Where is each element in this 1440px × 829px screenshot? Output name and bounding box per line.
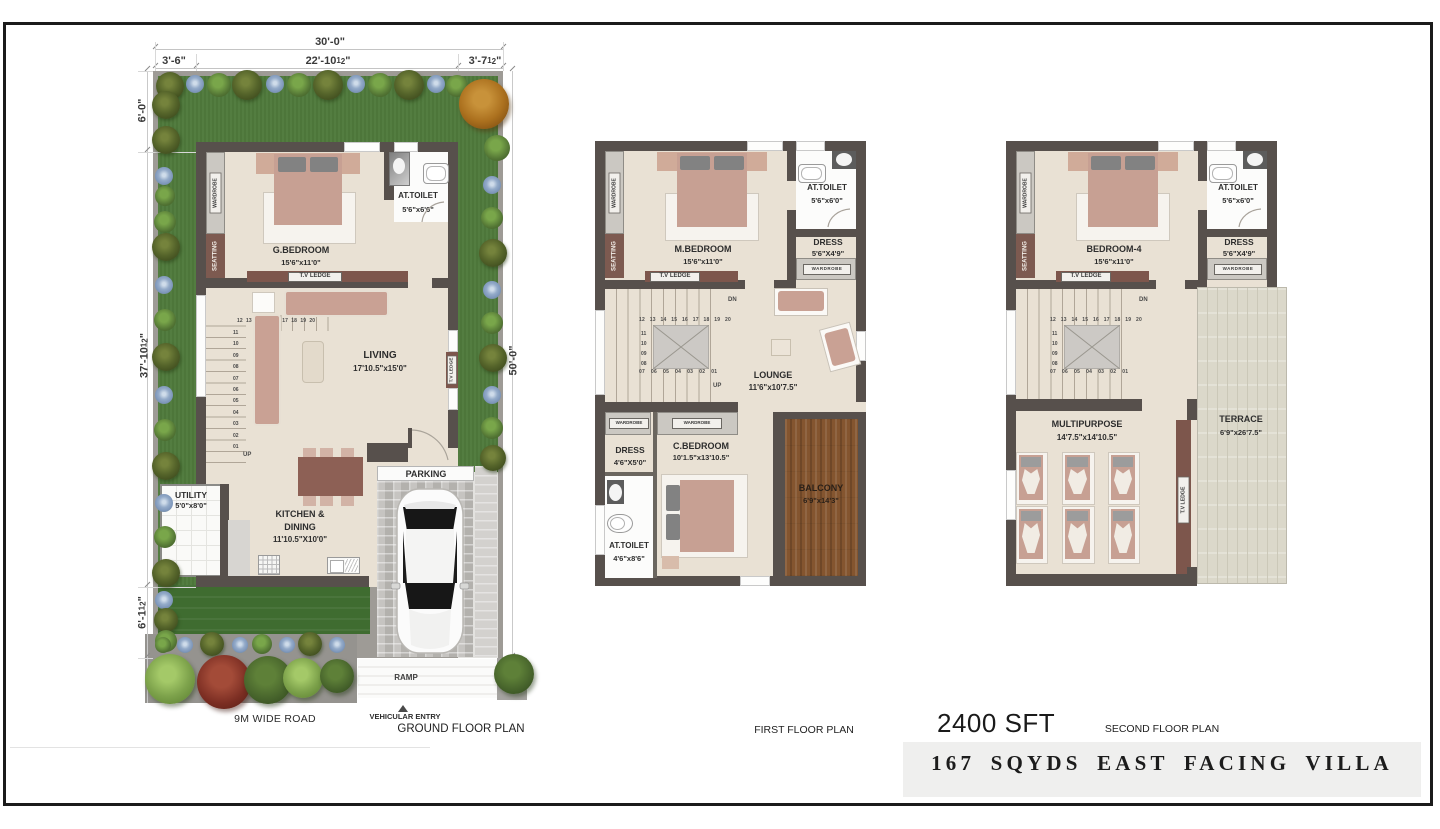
svg-text:WARDROBE: WARDROBE <box>213 177 219 207</box>
svg-text:T.V LEDGE: T.V LEDGE <box>1181 486 1187 513</box>
svg-text:WARDROBE: WARDROBE <box>612 177 618 207</box>
svg-text:SEATTING: SEATTING <box>213 241 219 271</box>
svg-text:SEATTING: SEATTING <box>612 241 618 271</box>
svg-text:SEATTING: SEATTING <box>1023 241 1029 271</box>
svg-text:T.V LEDGE: T.V LEDGE <box>449 357 455 383</box>
svg-text:WARDROBE: WARDROBE <box>1023 177 1029 207</box>
